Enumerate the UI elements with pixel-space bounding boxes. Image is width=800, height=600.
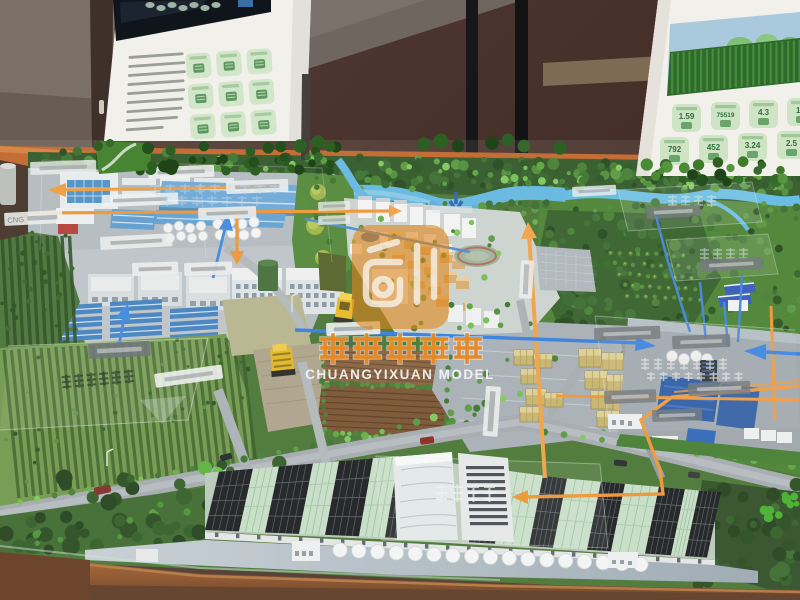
svg-text:4.3: 4.3 bbox=[758, 108, 770, 117]
svg-text:1.59: 1.59 bbox=[679, 112, 695, 121]
svg-text:CHUANGYIXUAN MODEL: CHUANGYIXUAN MODEL bbox=[305, 367, 495, 382]
svg-text:1.0: 1.0 bbox=[796, 106, 800, 115]
svg-text:3.24: 3.24 bbox=[745, 141, 761, 150]
svg-text:792: 792 bbox=[668, 145, 682, 154]
svg-text:75519: 75519 bbox=[717, 112, 735, 119]
svg-text:2.5: 2.5 bbox=[786, 139, 798, 148]
svg-text:452: 452 bbox=[707, 143, 721, 152]
